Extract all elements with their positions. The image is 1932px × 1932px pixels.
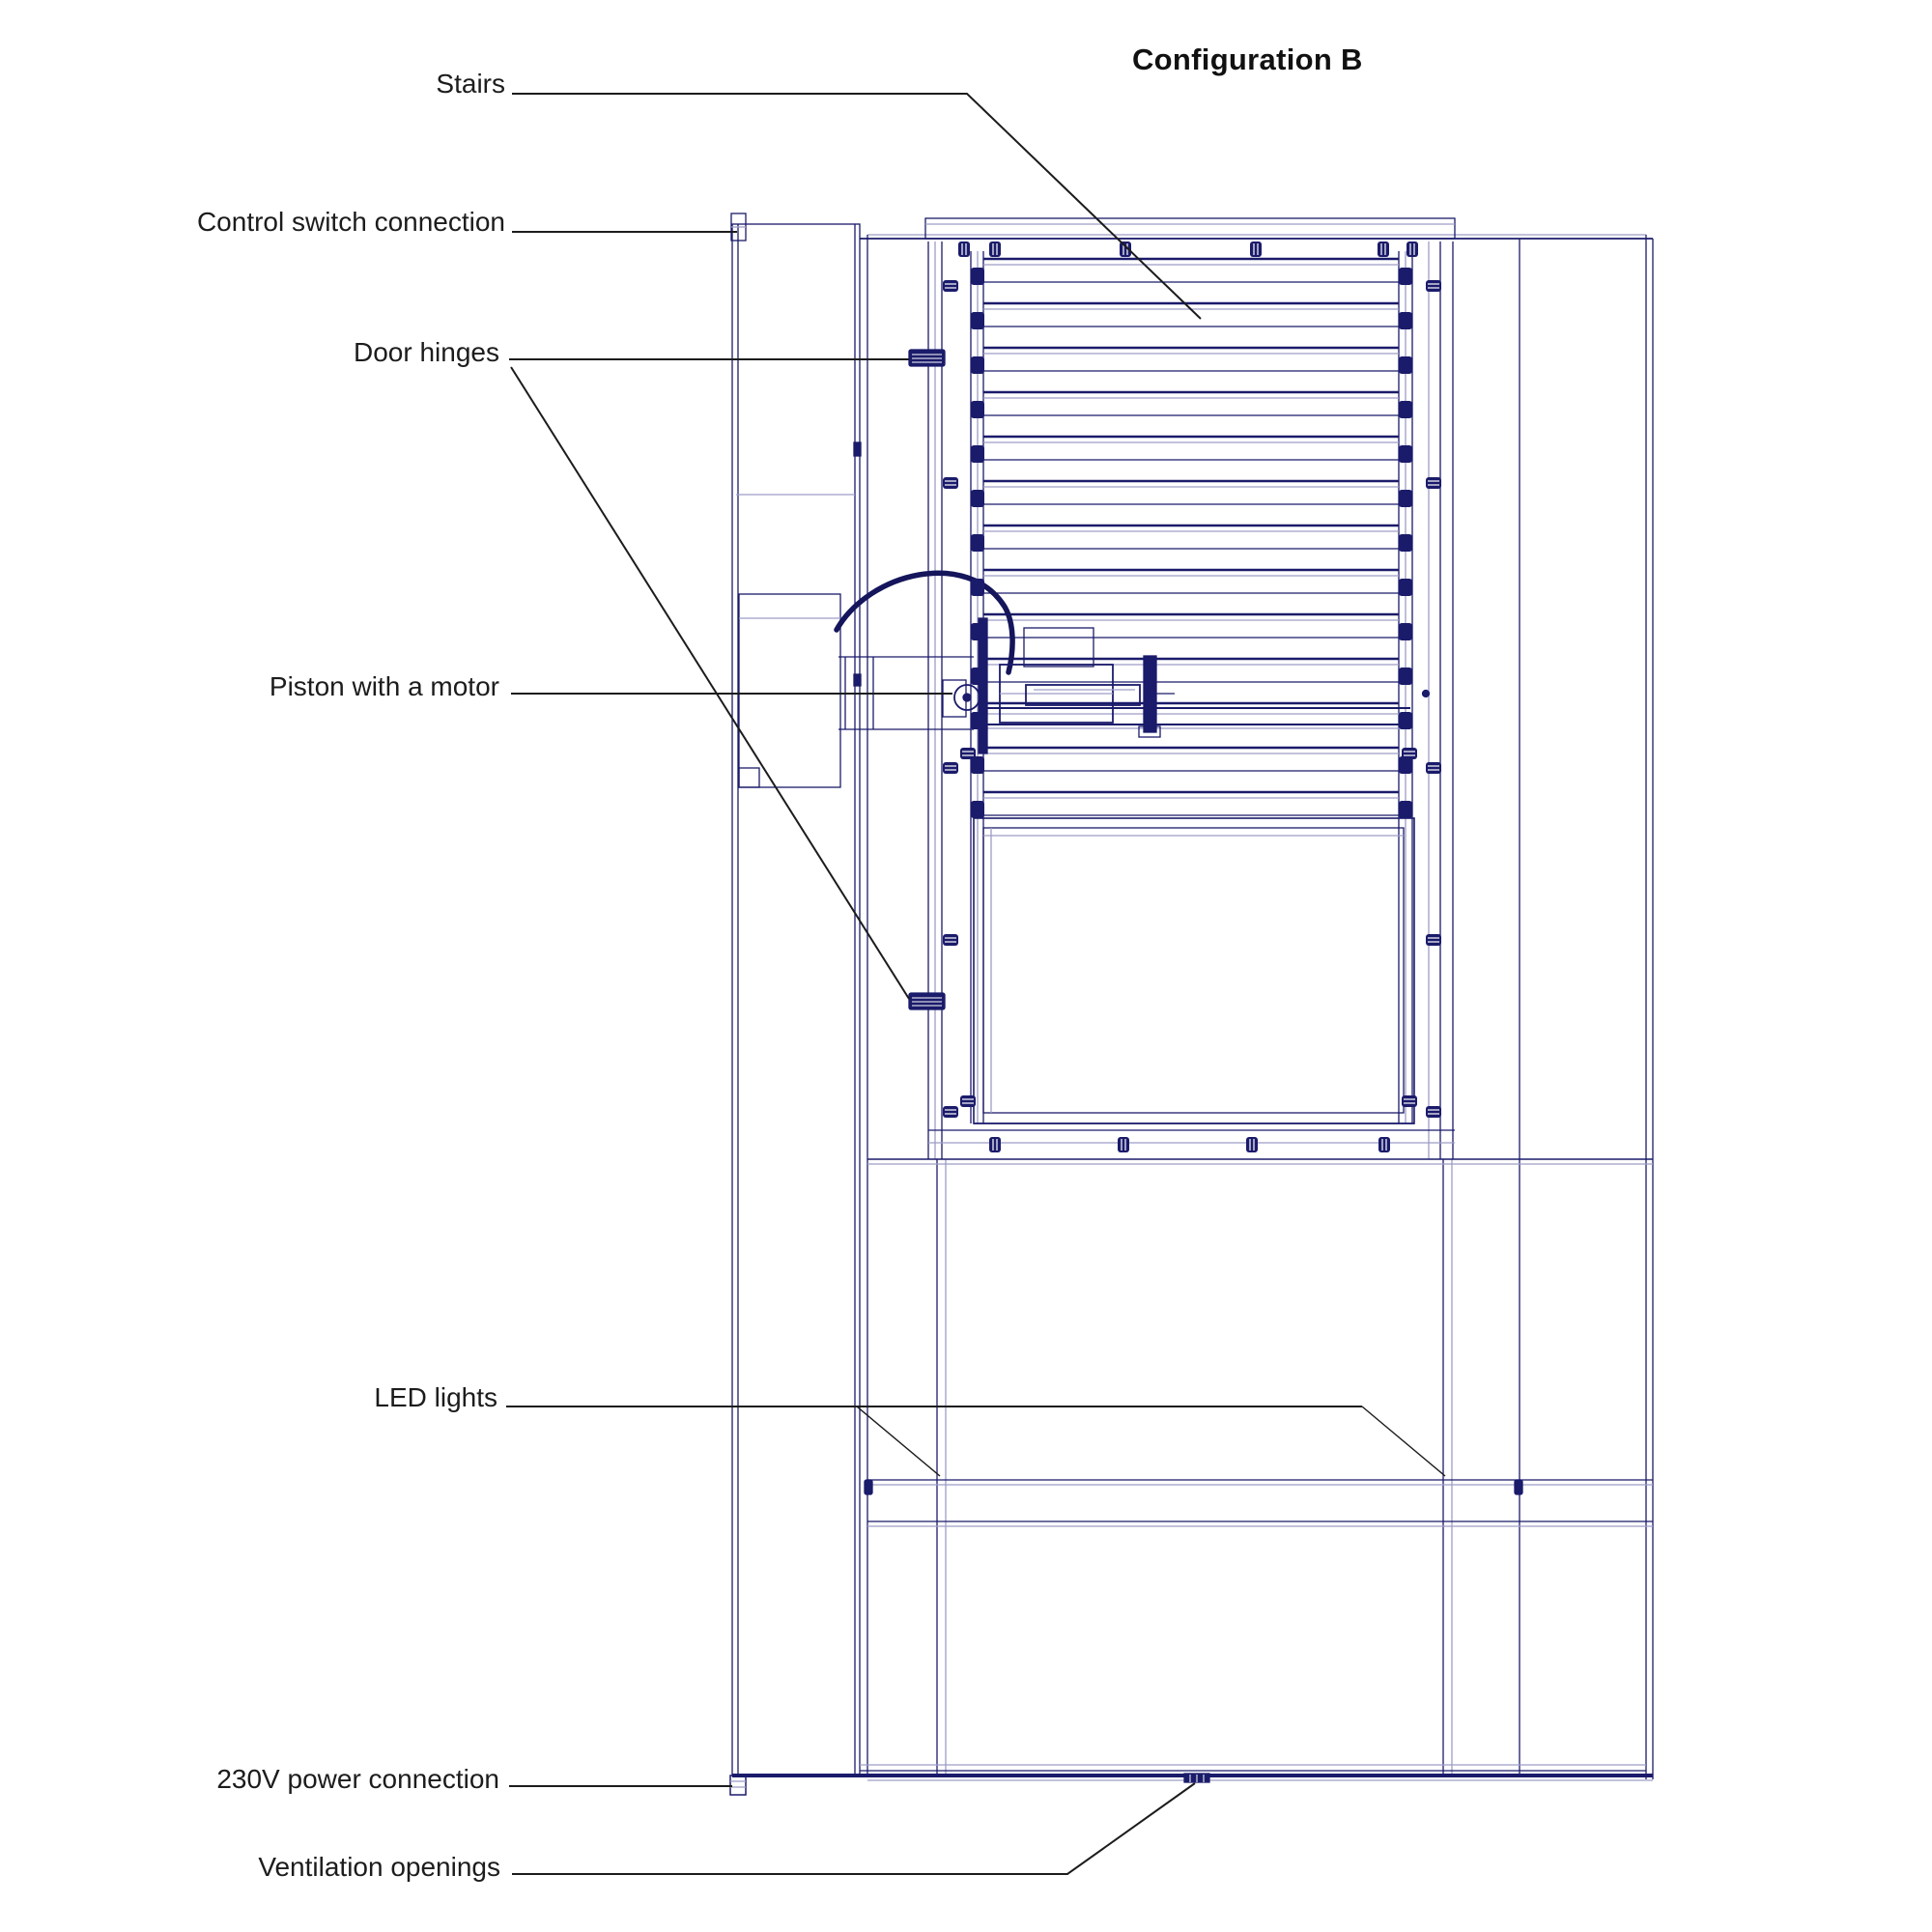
diagram-page: Configuration B Stairs Control switch co…	[0, 0, 1932, 1932]
door-hinge-upper	[909, 350, 945, 366]
label-led-lights: LED lights	[374, 1383, 497, 1412]
door-panel	[732, 224, 860, 1776]
module-bottom-rail	[867, 1123, 1653, 1164]
cabinet-technical-drawing	[0, 0, 1932, 1932]
door-hinge-lower	[909, 993, 945, 1009]
bolts-bottom-row	[989, 1137, 1390, 1152]
leader-led-left	[857, 1406, 940, 1476]
stair-rail-blocks	[971, 268, 1412, 818]
label-230v-power-connection: 230V power connection	[216, 1765, 499, 1794]
label-control-switch-connection: Control switch connection	[197, 208, 505, 237]
stairs-slats	[983, 259, 1399, 815]
cabinet-body	[732, 235, 1653, 1780]
label-door-hinges: Door hinges	[354, 338, 499, 367]
piston-motor-assembly	[739, 573, 1430, 787]
leader-stairs	[512, 94, 1201, 319]
bolts-top-row	[958, 241, 1418, 257]
piston-rail	[983, 708, 1410, 728]
ventilation-mark	[1184, 1774, 1209, 1782]
leader-ventilation	[512, 1783, 1195, 1874]
window-opening	[974, 818, 1414, 1123]
led-marks	[865, 1480, 1522, 1494]
door-latch-mark-lower	[854, 674, 861, 686]
label-stairs: Stairs	[436, 70, 505, 99]
label-ventilation-openings: Ventilation openings	[258, 1853, 500, 1882]
stair-module-frame	[925, 218, 1455, 1159]
door-latch-mark-upper	[854, 442, 861, 456]
power-connector	[730, 1776, 746, 1795]
leader-led-right	[1362, 1406, 1445, 1476]
bolts-side-columns	[943, 280, 1441, 1118]
label-piston-with-motor: Piston with a motor	[270, 672, 499, 701]
page-title: Configuration B	[1132, 43, 1363, 77]
leader-door-hinge-lower	[511, 367, 909, 999]
